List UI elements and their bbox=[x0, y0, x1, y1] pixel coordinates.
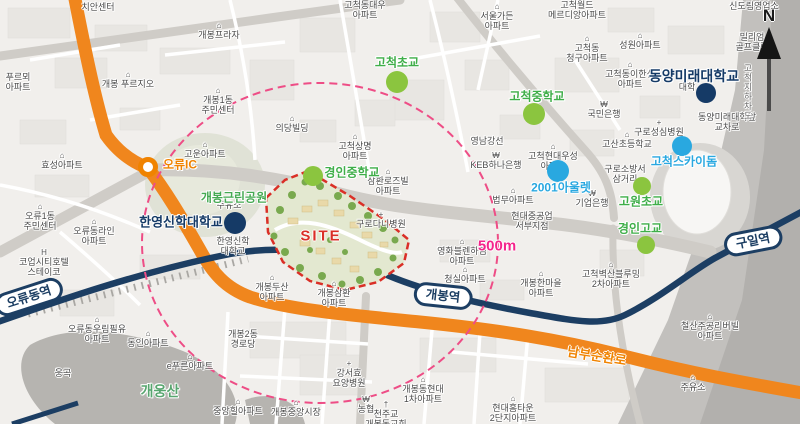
building-icon: ⌂ bbox=[23, 203, 56, 211]
building-icon: ⌂ bbox=[198, 22, 239, 30]
bank-icon: ₩ bbox=[470, 152, 521, 160]
landmark-dot-gocheok-middle bbox=[523, 103, 545, 125]
station-2: 구일역 bbox=[722, 224, 784, 259]
map-label-11: ⌂동인아파트 bbox=[127, 330, 168, 348]
landmark-kyungin-middle: 경인중학교 bbox=[324, 164, 379, 181]
building-icon: ⌂ bbox=[213, 398, 263, 406]
bank-icon: ₩ bbox=[587, 101, 620, 109]
map-label-35: ⌂의당빌딩 bbox=[275, 115, 308, 133]
hotel-icon: H bbox=[19, 249, 69, 257]
building-icon: ⌂ bbox=[68, 316, 126, 324]
landmark-kyungin-high: 경인고교 bbox=[618, 220, 662, 237]
hospital-icon: + bbox=[332, 360, 365, 368]
radius-distance-label: 500m bbox=[478, 238, 516, 255]
building-icon: ⌂ bbox=[317, 280, 350, 288]
hospital-icon: + bbox=[356, 211, 406, 219]
landmark-gowon-elem: 고원초교 bbox=[619, 193, 663, 210]
site-label: SITE bbox=[300, 228, 341, 245]
map-label-21: †천주교개봉동교회 bbox=[365, 401, 406, 424]
road-name-0: 남부순환로 bbox=[566, 341, 628, 369]
building-icon: ⌂ bbox=[255, 274, 288, 282]
building-icon: ⌂ bbox=[402, 376, 443, 384]
map-label-28: ⌂철산주공리버빌아파트 bbox=[681, 313, 739, 341]
building-icon: ⌂ bbox=[566, 35, 607, 43]
map-label-48: ⌂고산초등학교 bbox=[602, 131, 652, 149]
station-1: 개봉역 bbox=[413, 281, 474, 311]
compass-n-label: N bbox=[747, 6, 791, 26]
landmark-dot-oryu-ic bbox=[138, 157, 158, 177]
building-icon: ⌂ bbox=[127, 330, 168, 338]
landmark-dot-dongyang-univ bbox=[696, 83, 716, 103]
map-label-12: ⌂e푸른아파트 bbox=[167, 353, 213, 371]
landmark-outlet-2001: 2001아울렛 bbox=[531, 179, 591, 196]
building-icon: ⌂ bbox=[602, 131, 652, 139]
map-label-40: ₩KEB하나은행 bbox=[470, 152, 521, 170]
map-label-3: 푸르뫼아파트 bbox=[6, 72, 31, 92]
map-label-6: ⌂오류1동주민센터 bbox=[23, 203, 56, 231]
map-label-5: ⌂효성아파트 bbox=[41, 152, 82, 170]
building-icon: ⌂ bbox=[167, 353, 213, 361]
map-label-15: ⌂개봉삼환아파트 bbox=[317, 280, 350, 308]
map-label-22: ⌂개봉동현대1차아파트 bbox=[402, 376, 443, 404]
map-label-23: ⌂현대홈타운2단지아파트 bbox=[490, 395, 536, 423]
map-label-24: ⌂개봉한마을아파트 bbox=[520, 270, 561, 298]
map-label-7: ⌂오류동라인아파트 bbox=[73, 218, 114, 246]
map-label-38: +구로다니병원 bbox=[356, 211, 406, 229]
building-icon: ⌂ bbox=[102, 71, 154, 79]
building-icon: ⌂ bbox=[275, 115, 308, 123]
map-label-0: 치안센터 bbox=[81, 2, 114, 12]
landmark-dot-gocheok-elem bbox=[386, 71, 408, 93]
landmark-oryu-ic: 오류IC bbox=[163, 156, 197, 173]
map-label-16: 개봉2동경로당 bbox=[228, 329, 258, 349]
map: 치안센터⌂개봉프라자⌂개봉 푸르지오푸르뫼아파트⌂개봉1동주민센터⌂효성아파트⌂… bbox=[0, 0, 800, 424]
map-label-14: ⌂개봉두산아파트 bbox=[255, 274, 288, 302]
map-label-49: ⌂성원아파트 bbox=[619, 32, 660, 50]
landmark-dot-kyungin-high bbox=[637, 236, 655, 254]
building-icon: ⌂ bbox=[520, 270, 561, 278]
landmark-hanyoung-univ: 한영신학대학교 bbox=[139, 212, 223, 231]
map-label-17: ⌂중앙힐아파트 bbox=[213, 398, 263, 416]
building-icon: ⌂ bbox=[492, 187, 533, 195]
map-label-2: ⌂개봉 푸르지오 bbox=[102, 71, 154, 89]
building-icon: ⌂ bbox=[271, 399, 321, 407]
station-0: 오류동역 bbox=[0, 275, 66, 319]
building-icon: ⌂ bbox=[338, 133, 371, 141]
building-icon: ⌂ bbox=[528, 143, 578, 151]
north-arrow-tail bbox=[767, 59, 771, 111]
building-icon: ⌂ bbox=[184, 141, 225, 149]
landmark-gocheok-middle: 고척중학교 bbox=[509, 88, 564, 105]
building-icon: ⌂ bbox=[681, 374, 706, 382]
map-label-8: H코업시티호텔스테이코 bbox=[19, 249, 69, 277]
landmark-gocheok-elem: 고척초교 bbox=[375, 54, 419, 71]
map-label-32: 고척동대우아파트 bbox=[344, 0, 385, 20]
map-label-18: ⌂개봉중앙시장 bbox=[271, 399, 321, 417]
map-label-4: ⌂개봉1동주민센터 bbox=[201, 87, 234, 115]
labels-layer: 치안센터⌂개봉프라자⌂개봉 푸르지오푸르뫼아파트⌂개봉1동주민센터⌂효성아파트⌂… bbox=[0, 0, 800, 424]
landmark-gaeung-mountain: 개웅산 bbox=[141, 381, 180, 401]
landmark-dot-hanyoung-univ bbox=[224, 212, 246, 234]
building-icon: ⌂ bbox=[444, 266, 485, 274]
map-label-1: ⌂개봉프라자 bbox=[198, 22, 239, 40]
map-label-30: 한영신학대학교 bbox=[216, 236, 249, 256]
landmark-dot-kyungin-middle bbox=[303, 166, 323, 186]
building-icon: ⌂ bbox=[605, 61, 655, 69]
map-label-29: ⌂주유소 bbox=[681, 374, 706, 392]
landmark-gaebong-park: 개봉근린공원 bbox=[201, 189, 267, 206]
map-label-36: ⌂고척상명아파트 bbox=[338, 133, 371, 161]
map-label-34: 고척월드메르디앙아파트 bbox=[548, 0, 606, 20]
compass: N bbox=[747, 6, 791, 111]
map-label-19: +강서효요양병원 bbox=[332, 360, 365, 388]
map-label-43: 현대중공업서부지점 bbox=[511, 211, 552, 231]
map-label-39: 영남강선 bbox=[470, 136, 503, 146]
map-label-27: ⌂고척벽산블루밍2차아파트 bbox=[582, 261, 640, 289]
building-icon: ⌂ bbox=[480, 3, 513, 11]
map-label-33: ⌂서울가든아파트 bbox=[480, 3, 513, 31]
building-icon: ⌂ bbox=[619, 32, 660, 40]
building-icon: ⌂ bbox=[490, 395, 536, 403]
map-label-25: ⌂청실아파트 bbox=[444, 266, 485, 284]
building-icon: ⌂ bbox=[201, 87, 234, 95]
church-icon: † bbox=[365, 401, 406, 409]
north-arrow-icon bbox=[757, 27, 781, 59]
map-label-13: 웅곡 bbox=[55, 368, 72, 378]
map-label-46: ₩국민은행 bbox=[587, 101, 620, 119]
building-icon: ⌂ bbox=[681, 313, 739, 321]
map-label-50: ⌂고척동청구아파트 bbox=[566, 35, 607, 63]
map-label-10: ⌂오류동우림필유아파트 bbox=[68, 316, 126, 344]
building-icon: ⌂ bbox=[41, 152, 82, 160]
building-icon: ⌂ bbox=[73, 218, 114, 226]
landmark-gocheok-skydome: 고척스카이돔 bbox=[651, 153, 717, 170]
building-icon: ⌂ bbox=[582, 261, 640, 269]
landmark-dongyang-univ: 동양미래대학교 bbox=[649, 66, 739, 86]
map-label-42: ⌂법무아파트 bbox=[492, 187, 533, 205]
hospital-icon: + bbox=[634, 119, 684, 127]
map-label-51: ⌂고척동이한신아파트 bbox=[605, 61, 655, 89]
